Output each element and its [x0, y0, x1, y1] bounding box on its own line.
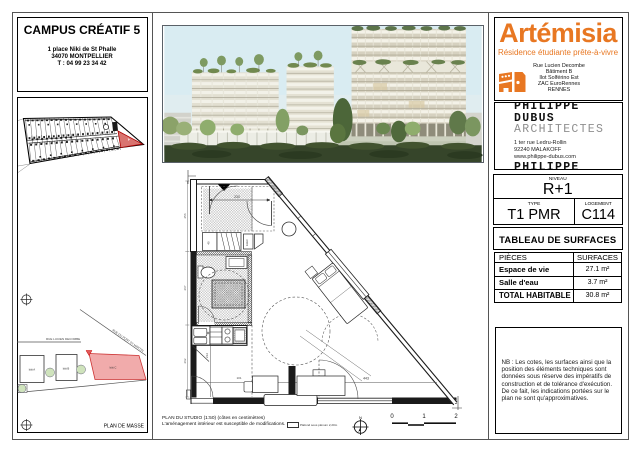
svg-text:0: 0: [390, 414, 394, 420]
svg-text:40: 40: [207, 241, 211, 245]
svg-text:ELEC: ELEC: [245, 239, 249, 246]
svg-text:bât C: bât C: [110, 365, 117, 369]
svg-text:PLAN DE MASSE: PLAN DE MASSE: [104, 423, 145, 429]
svg-text:101: 101: [236, 376, 241, 380]
svg-text:2: 2: [454, 414, 458, 420]
svg-text:230: 230: [234, 195, 240, 199]
svg-text:bât B: bât B: [63, 366, 70, 370]
svg-text:RUE LUCIEN DECOMBE: RUE LUCIEN DECOMBE: [46, 337, 80, 341]
svg-text:RUE DU PONT ST MARTIN: RUE DU PONT ST MARTIN: [111, 328, 144, 353]
svg-text:267: 267: [183, 285, 187, 290]
svg-text:1: 1: [422, 414, 426, 420]
svg-text:256: 256: [183, 213, 187, 218]
svg-text:212: 212: [205, 353, 209, 358]
svg-text:bât A: bât A: [29, 367, 36, 371]
svg-text:262: 262: [183, 358, 187, 363]
svg-text:443: 443: [363, 377, 369, 381]
